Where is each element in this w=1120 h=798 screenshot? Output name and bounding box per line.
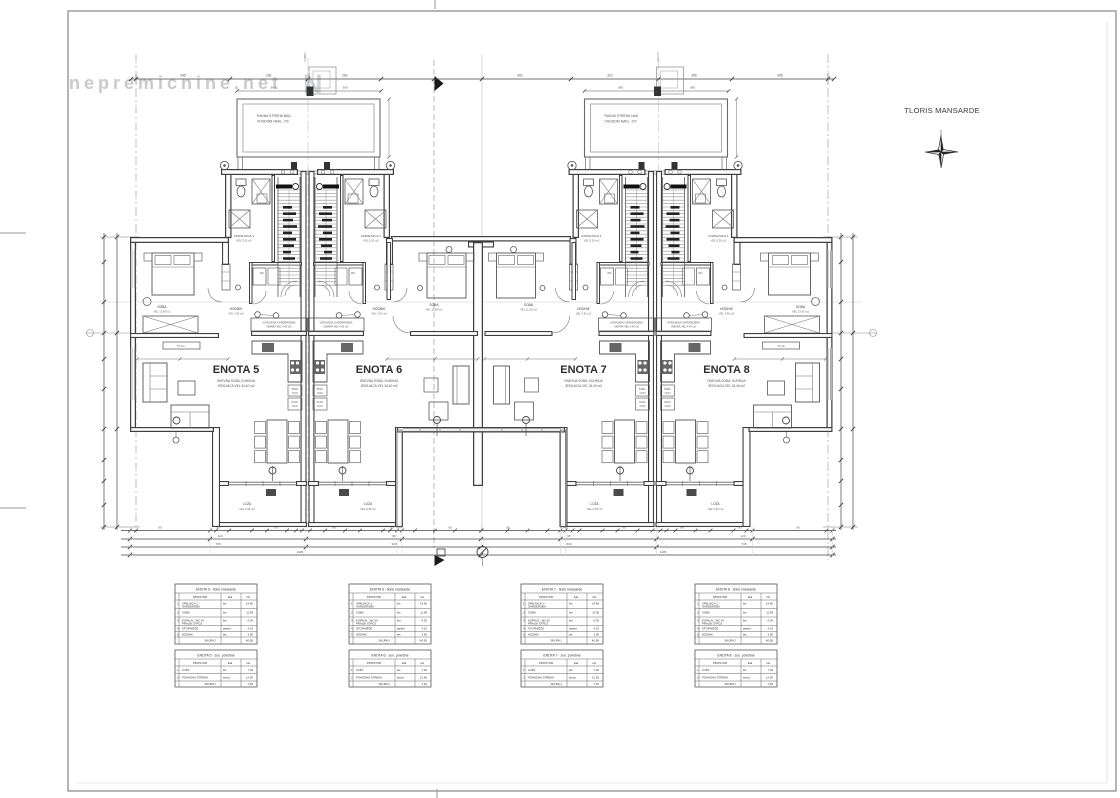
svg-text:360: 360: [690, 86, 695, 90]
svg-text:14.60: 14.60: [420, 602, 427, 606]
svg-text:6.35: 6.35: [422, 619, 428, 623]
svg-text:12.60: 12.60: [420, 676, 427, 680]
svg-text:60/60: 60/60: [292, 405, 299, 408]
svg-text:7.40: 7.40: [767, 682, 773, 686]
svg-text:RAVNA STREHA NAD: RAVNA STREHA NAD: [257, 114, 291, 118]
svg-text:360: 360: [342, 86, 347, 90]
svg-text:ENOTA 5 - tloris mansarde: ENOTA 5 - tloris mansarde: [196, 588, 236, 592]
svg-text:les: les: [223, 602, 227, 606]
svg-text:120: 120: [740, 534, 745, 538]
svg-text:HLAD.: HLAD.: [639, 401, 646, 404]
svg-text:POHODNA STREHA: POHODNA STREHA: [356, 676, 382, 680]
svg-text:60/60: 60/60: [640, 405, 647, 408]
svg-text:11.90: 11.90: [420, 611, 427, 615]
svg-text:735: 735: [215, 542, 220, 546]
svg-text:330: 330: [391, 542, 396, 546]
svg-text:SKUPAJ: SKUPAJ: [204, 639, 216, 643]
svg-text:4.15: 4.15: [422, 627, 428, 631]
svg-text:les: les: [223, 668, 227, 672]
svg-text:les: les: [569, 633, 573, 637]
svg-text:LOŽA: LOŽA: [364, 501, 373, 506]
svg-text:312: 312: [607, 74, 613, 78]
svg-text:TV om.: TV om.: [177, 344, 186, 348]
svg-text:HODNIK: HODNIK: [230, 307, 244, 311]
svg-text:12.60: 12.60: [766, 676, 773, 680]
svg-text:OMARA VEL 4.40 m2: OMARA VEL 4.40 m2: [324, 325, 350, 329]
svg-text:les: les: [743, 611, 747, 615]
svg-text:262: 262: [342, 74, 348, 78]
svg-text:beton: beton: [397, 676, 404, 680]
svg-text:SOBA: SOBA: [524, 303, 534, 307]
svg-text:tlak: tlak: [574, 595, 579, 599]
svg-text:SKUPAJ: SKUPAJ: [724, 682, 736, 686]
svg-text:7.40: 7.40: [421, 682, 427, 686]
svg-text:266: 266: [691, 74, 697, 78]
svg-text:PRALNI STROJ: PRALNI STROJ: [356, 622, 377, 626]
svg-text:4.15: 4.15: [768, 627, 774, 631]
svg-text:STOPNIŠČE: STOPNIŠČE: [356, 626, 372, 631]
svg-text:WC: WC: [607, 271, 611, 275]
svg-text:LOŽA: LOŽA: [702, 667, 709, 672]
svg-text:les: les: [397, 602, 401, 606]
svg-text:40.90: 40.90: [246, 639, 254, 643]
svg-text:m2: m2: [420, 661, 424, 665]
svg-text:HLAD.: HLAD.: [291, 401, 298, 404]
svg-text:ENOTA 5: ENOTA 5: [213, 364, 259, 376]
svg-text:VHODOM NAKL. 2%: VHODOM NAKL. 2%: [605, 120, 637, 124]
svg-text:95: 95: [567, 534, 571, 538]
svg-text:HODNIK: HODNIK: [182, 633, 193, 637]
svg-text:ker: ker: [569, 619, 573, 623]
svg-text:LOŽA: LOŽA: [356, 667, 363, 672]
svg-text:40.90: 40.90: [592, 639, 600, 643]
svg-text:12.60: 12.60: [246, 676, 253, 680]
svg-text:JEDILNICA VEL 34.40 m2: JEDILNICA VEL 34.40 m2: [360, 384, 397, 388]
svg-text:120: 120: [217, 534, 222, 538]
svg-text:m2: m2: [246, 661, 250, 665]
svg-text:7.40: 7.40: [247, 682, 253, 686]
svg-text:ŠTED.: ŠTED.: [664, 388, 671, 391]
svg-text:PRALNI STROJ: PRALNI STROJ: [528, 622, 549, 626]
svg-text:6.35: 6.35: [768, 619, 774, 623]
svg-text:KOPALNICA 1: KOPALNICA 1: [234, 234, 254, 238]
svg-text:11.90: 11.90: [246, 611, 253, 615]
svg-text:WC: WC: [698, 271, 702, 275]
svg-text:tlak: tlak: [228, 661, 233, 665]
svg-text:PROSTOR: PROSTOR: [367, 595, 381, 599]
svg-text:beton: beton: [223, 676, 230, 680]
svg-text:SOBA: SOBA: [702, 611, 710, 615]
svg-text:ENOTA 5 - zun. površine: ENOTA 5 - zun. površine: [197, 654, 234, 658]
svg-text:DNEVNA SOBA, KUHINJA: DNEVNA SOBA, KUHINJA: [564, 379, 603, 383]
svg-text:2: 2: [304, 55, 306, 59]
svg-text:beton: beton: [569, 676, 576, 680]
svg-text:les: les: [743, 633, 747, 637]
svg-text:HLAD.: HLAD.: [316, 401, 323, 404]
svg-text:VEL 5.20 m2: VEL 5.20 m2: [236, 239, 252, 243]
svg-text:les: les: [569, 602, 573, 606]
svg-text:14.60: 14.60: [246, 602, 253, 606]
svg-text:90: 90: [796, 526, 800, 530]
svg-text:12.60: 12.60: [592, 676, 599, 680]
svg-text:7.40: 7.40: [593, 682, 599, 686]
svg-text:3.90: 3.90: [422, 633, 428, 637]
svg-text:VEL 5.20 m2: VEL 5.20 m2: [584, 239, 600, 243]
svg-text:STOPNIŠČE: STOPNIŠČE: [528, 626, 544, 631]
svg-text:345: 345: [777, 74, 783, 78]
svg-text:m2: m2: [766, 595, 770, 599]
svg-text:les: les: [223, 633, 227, 637]
svg-text:VEL 5.20 m2: VEL 5.20 m2: [363, 239, 379, 243]
svg-text:SOBA: SOBA: [528, 611, 536, 615]
svg-text:VEL 9.35 m2: VEL 9.35 m2: [360, 507, 376, 511]
svg-text:VEL 11.90 m2: VEL 11.90 m2: [520, 308, 537, 312]
svg-text:360: 360: [618, 86, 623, 90]
svg-text:GARDEROBA: GARDEROBA: [702, 605, 720, 609]
svg-text:beton: beton: [743, 676, 750, 680]
svg-text:WC: WC: [351, 271, 355, 275]
svg-text:POHODNA STREHA: POHODNA STREHA: [528, 676, 554, 680]
svg-text:90: 90: [158, 526, 162, 530]
svg-text:HODNIK: HODNIK: [720, 307, 734, 311]
svg-text:14.60: 14.60: [766, 602, 773, 606]
svg-text:VGRAJENA GARDEROBNA: VGRAJENA GARDEROBNA: [610, 321, 643, 325]
svg-text:m2: m2: [766, 661, 770, 665]
svg-text:ker: ker: [223, 619, 227, 623]
svg-text:7.40: 7.40: [422, 668, 428, 672]
svg-text:GARDEROBA: GARDEROBA: [182, 605, 200, 609]
svg-text:les: les: [569, 611, 573, 615]
svg-text:VEL 3.90 m2: VEL 3.90 m2: [576, 312, 592, 316]
svg-text:4.15: 4.15: [594, 627, 600, 631]
svg-text:LOŽA: LOŽA: [243, 501, 252, 506]
svg-text:JEDILNICA VEL 34.40 m2: JEDILNICA VEL 34.40 m2: [708, 384, 745, 388]
svg-text:6.35: 6.35: [594, 619, 600, 623]
svg-text:SOBA: SOBA: [157, 305, 167, 309]
svg-text:VEL 5.20 m2: VEL 5.20 m2: [711, 239, 727, 243]
svg-text:PROSTOR: PROSTOR: [539, 595, 553, 599]
svg-text:60/60: 60/60: [665, 392, 672, 395]
svg-text:m2: m2: [246, 595, 250, 599]
svg-text:ŠTED.: ŠTED.: [639, 388, 646, 391]
svg-text:7.40: 7.40: [248, 668, 254, 672]
svg-text:PROSTOR: PROSTOR: [193, 595, 207, 599]
svg-text:ENOTA 7 - tloris mansarde: ENOTA 7 - tloris mansarde: [542, 588, 582, 592]
svg-text:SOBA: SOBA: [429, 303, 439, 307]
svg-text:les: les: [397, 633, 401, 637]
svg-text:POHODNA STREHA: POHODNA STREHA: [702, 676, 728, 680]
svg-text:tlak: tlak: [748, 595, 753, 599]
svg-text:PROSTOR: PROSTOR: [539, 661, 553, 665]
svg-text:PROSTOR: PROSTOR: [193, 661, 207, 665]
svg-text:LOŽA: LOŽA: [590, 501, 599, 506]
svg-text:HODNIK: HODNIK: [356, 633, 367, 637]
svg-text:14.60: 14.60: [592, 602, 599, 606]
svg-text:les: les: [223, 611, 227, 615]
svg-text:KOPALNICA 1: KOPALNICA 1: [709, 234, 729, 238]
svg-text:VEL 3.90 m2: VEL 3.90 m2: [228, 312, 244, 316]
svg-text:3.90: 3.90: [594, 633, 600, 637]
svg-text:m2: m2: [420, 595, 424, 599]
svg-text:WC: WC: [260, 271, 264, 275]
svg-text:SOBA: SOBA: [796, 305, 806, 309]
svg-text:90: 90: [506, 526, 510, 530]
svg-text:ker: ker: [743, 619, 747, 623]
svg-text:ŠTED.: ŠTED.: [291, 388, 298, 391]
svg-text:JEDILNICA VEL 34.40 m2: JEDILNICA VEL 34.40 m2: [565, 384, 602, 388]
svg-text:DNEVNA SOBA, KUHINJA: DNEVNA SOBA, KUHINJA: [707, 379, 746, 383]
svg-text:SKUPAJ: SKUPAJ: [724, 639, 736, 643]
svg-text:tlak: tlak: [574, 661, 579, 665]
svg-text:VHODOM NAKL. 2%: VHODOM NAKL. 2%: [257, 120, 289, 124]
svg-text:60/60: 60/60: [665, 405, 672, 408]
svg-text:452: 452: [517, 74, 523, 78]
svg-text:7.40: 7.40: [768, 668, 774, 672]
svg-text:ENOTA 6 - tloris mansarde: ENOTA 6 - tloris mansarde: [370, 588, 410, 592]
svg-text:ENOTA 8 - tloris mansarde: ENOTA 8 - tloris mansarde: [716, 588, 756, 592]
svg-text:HODNIK: HODNIK: [373, 307, 387, 311]
svg-text:parket: parket: [223, 627, 231, 631]
svg-text:6.35: 6.35: [248, 619, 254, 623]
svg-text:11.90: 11.90: [592, 611, 599, 615]
svg-text:281: 281: [266, 74, 272, 78]
svg-text:1405: 1405: [297, 550, 304, 554]
svg-text:ŠTED.: ŠTED.: [316, 388, 323, 391]
svg-text:ENOTA 7 - zun. površine: ENOTA 7 - zun. površine: [543, 654, 580, 658]
svg-text:GARDEROBA: GARDEROBA: [528, 605, 546, 609]
svg-text:345: 345: [180, 74, 186, 78]
svg-text:TLORIS MANSARDE: TLORIS MANSARDE: [904, 106, 980, 115]
svg-text:ENOTA 7: ENOTA 7: [560, 364, 606, 376]
svg-text:SOBA: SOBA: [182, 611, 190, 615]
svg-text:RAVNA STREHA NAD: RAVNA STREHA NAD: [605, 114, 639, 118]
svg-text:tlak: tlak: [402, 661, 407, 665]
svg-text:STOPNIŠČE: STOPNIŠČE: [182, 626, 198, 631]
svg-text:m2: m2: [592, 661, 596, 665]
svg-text:330: 330: [566, 542, 571, 546]
svg-text:4.15: 4.15: [248, 627, 254, 631]
svg-text:SOBA: SOBA: [356, 611, 364, 615]
svg-text:HODNIK: HODNIK: [702, 633, 713, 637]
svg-text:SKUPAJ: SKUPAJ: [378, 682, 390, 686]
svg-text:PROSTOR: PROSTOR: [713, 661, 727, 665]
svg-text:SKUPAJ: SKUPAJ: [550, 639, 562, 643]
svg-text:ker: ker: [397, 619, 401, 623]
svg-text:HLAD.: HLAD.: [664, 401, 671, 404]
svg-text:LOŽA: LOŽA: [182, 667, 189, 672]
svg-text:TV om.: TV om.: [777, 344, 786, 348]
svg-text:les: les: [397, 611, 401, 615]
svg-text:VEL 13.95 m2: VEL 13.95 m2: [154, 310, 171, 314]
svg-text:60/60: 60/60: [640, 392, 647, 395]
svg-text:3.90: 3.90: [248, 633, 254, 637]
svg-text:SKUPAJ: SKUPAJ: [204, 682, 216, 686]
svg-text:DNEVNA SOBA, KUHINJA: DNEVNA SOBA, KUHINJA: [360, 379, 399, 383]
svg-text:VEL 9.35 m2: VEL 9.35 m2: [708, 507, 724, 511]
svg-text:POHODNA STREHA: POHODNA STREHA: [182, 676, 208, 680]
svg-text:les: les: [569, 668, 573, 672]
svg-text:40.90: 40.90: [420, 639, 428, 643]
svg-text:735: 735: [741, 542, 746, 546]
svg-text:les: les: [397, 668, 401, 672]
svg-text:tlak: tlak: [228, 595, 233, 599]
svg-text:nepremicnine.net: nepremicnine.net: [69, 73, 282, 93]
svg-text:ENOTA 8 - zun. površine: ENOTA 8 - zun. površine: [717, 654, 754, 658]
svg-text:tlak: tlak: [748, 661, 753, 665]
svg-text:SKUPAJ: SKUPAJ: [378, 639, 390, 643]
svg-text:3.90: 3.90: [768, 633, 774, 637]
svg-text:PROSTOR: PROSTOR: [713, 595, 727, 599]
svg-text:60/60: 60/60: [292, 392, 299, 395]
svg-text:1405: 1405: [660, 550, 667, 554]
svg-text:ENOTA 6: ENOTA 6: [356, 364, 402, 376]
svg-text:KOPALNICA 1: KOPALNICA 1: [582, 234, 602, 238]
svg-text:OMARA VEL 4.40 m2: OMARA VEL 4.40 m2: [671, 325, 697, 329]
svg-text:parket: parket: [397, 627, 405, 631]
svg-text:GARDEROBA: GARDEROBA: [356, 605, 374, 609]
svg-text:ENOTA 6 - zun. površine: ENOTA 6 - zun. površine: [371, 654, 408, 658]
svg-text:les: les: [743, 668, 747, 672]
svg-text:90: 90: [448, 526, 452, 530]
svg-text:DNEVNA SOBA, KUHINJA: DNEVNA SOBA, KUHINJA: [217, 379, 256, 383]
svg-text:VEL 3.90 m2: VEL 3.90 m2: [719, 312, 735, 316]
svg-text:LOŽA: LOŽA: [528, 667, 535, 672]
svg-text:40.90: 40.90: [766, 639, 774, 643]
svg-text:parket: parket: [743, 627, 751, 631]
svg-text:VGRAJENA GARDEROBNA: VGRAJENA GARDEROBNA: [319, 321, 352, 325]
svg-text:SKUPAJ: SKUPAJ: [550, 682, 562, 686]
svg-text:LOŽA: LOŽA: [711, 501, 720, 506]
svg-text:parket: parket: [569, 627, 577, 631]
svg-text:60/60: 60/60: [317, 405, 324, 408]
svg-text:HODNIK: HODNIK: [528, 633, 539, 637]
svg-text:STOPNIŠČE: STOPNIŠČE: [702, 626, 718, 631]
svg-text:7.40: 7.40: [594, 668, 600, 672]
svg-text:tlak: tlak: [402, 595, 407, 599]
svg-text:OMARA VEL 4.40 m2: OMARA VEL 4.40 m2: [614, 325, 640, 329]
svg-text:HODNIK: HODNIK: [577, 307, 591, 311]
svg-text:VEL 11.90 m2: VEL 11.90 m2: [426, 308, 443, 312]
svg-text:KOPALNICA 1: KOPALNICA 1: [361, 234, 381, 238]
svg-text:VEL 13.95 m2: VEL 13.95 m2: [792, 310, 809, 314]
svg-text:PRALNI STROJ: PRALNI STROJ: [182, 622, 203, 626]
svg-text:ENOTA 8: ENOTA 8: [703, 364, 749, 376]
svg-text:les: les: [743, 602, 747, 606]
svg-text:360: 360: [270, 86, 275, 90]
svg-text:JEDILNICA VEL 34.40 m2: JEDILNICA VEL 34.40 m2: [217, 384, 254, 388]
svg-text:PROSTOR: PROSTOR: [367, 661, 381, 665]
svg-text:VEL 3.90 m2: VEL 3.90 m2: [371, 312, 387, 316]
svg-text:95: 95: [392, 534, 396, 538]
svg-text:OMARA VEL 4.40 m2: OMARA VEL 4.40 m2: [267, 325, 293, 329]
svg-text:m2: m2: [592, 595, 596, 599]
svg-text:VGRAJENA GARDEROBNA: VGRAJENA GARDEROBNA: [262, 321, 295, 325]
svg-text:VEL 9.35 m2: VEL 9.35 m2: [587, 507, 603, 511]
svg-text:60/60: 60/60: [317, 392, 324, 395]
svg-text:VEL 9.35 m2: VEL 9.35 m2: [239, 507, 255, 511]
svg-text:11.90: 11.90: [766, 611, 773, 615]
svg-text:VGRAJENA GARDEROBNA: VGRAJENA GARDEROBNA: [667, 321, 700, 325]
svg-text:PRALNI STROJ: PRALNI STROJ: [702, 622, 723, 626]
